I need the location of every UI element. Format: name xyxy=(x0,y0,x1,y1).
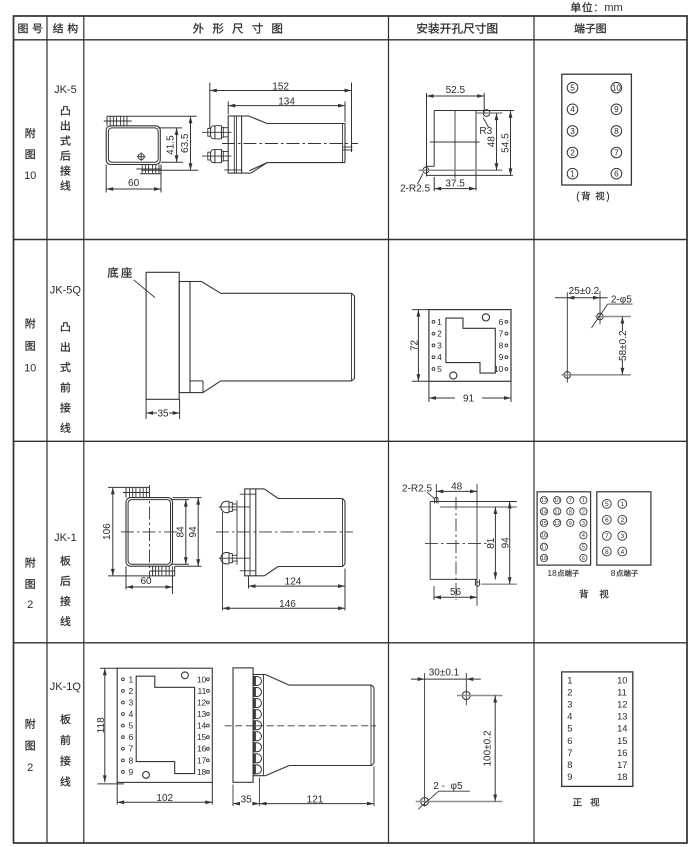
svg-text:17: 17 xyxy=(617,760,627,770)
svg-text:6: 6 xyxy=(567,736,572,746)
svg-text:7: 7 xyxy=(129,744,134,754)
svg-text:R3: R3 xyxy=(479,126,492,137)
svg-text:48: 48 xyxy=(451,482,463,493)
svg-text:13: 13 xyxy=(617,712,627,722)
svg-text:2: 2 xyxy=(567,688,572,698)
svg-text:5: 5 xyxy=(570,84,575,93)
svg-text:18: 18 xyxy=(541,556,547,562)
svg-text:48: 48 xyxy=(487,136,498,148)
svg-text:3: 3 xyxy=(582,521,585,527)
svg-text:100±0.2: 100±0.2 xyxy=(483,730,494,767)
svg-text:12: 12 xyxy=(617,700,627,710)
svg-text:4: 4 xyxy=(620,549,624,556)
svg-text:φ5: φ5 xyxy=(450,781,462,792)
svg-text:1: 1 xyxy=(582,498,585,504)
svg-text:10: 10 xyxy=(494,364,504,374)
svg-text:8: 8 xyxy=(611,568,616,578)
svg-text:11: 11 xyxy=(555,509,560,515)
svg-text:134: 134 xyxy=(278,96,295,107)
svg-text:JK-5: JK-5 xyxy=(54,84,77,96)
svg-text:16: 16 xyxy=(617,748,627,758)
svg-text:2: 2 xyxy=(582,509,585,515)
svg-text:18: 18 xyxy=(617,772,627,782)
svg-text:12: 12 xyxy=(197,697,207,707)
svg-text:9: 9 xyxy=(569,521,572,527)
svg-text:10: 10 xyxy=(617,676,627,686)
svg-text:2: 2 xyxy=(27,762,33,774)
svg-text:7: 7 xyxy=(614,148,619,157)
svg-text:84: 84 xyxy=(176,526,187,538)
svg-text:mm: mm xyxy=(604,2,622,14)
svg-text:6: 6 xyxy=(129,732,134,742)
svg-text:1: 1 xyxy=(567,676,572,686)
svg-text:15: 15 xyxy=(541,521,547,527)
svg-text:9: 9 xyxy=(129,767,134,777)
svg-text:2: 2 xyxy=(437,329,442,339)
svg-text:): ) xyxy=(606,191,610,203)
svg-text:4: 4 xyxy=(582,533,585,539)
svg-text:17: 17 xyxy=(197,755,207,765)
svg-text:52.5: 52.5 xyxy=(446,85,466,96)
svg-text:37.5: 37.5 xyxy=(445,179,465,190)
svg-text:2: 2 xyxy=(570,148,575,157)
svg-text:1: 1 xyxy=(620,501,624,508)
svg-text:JK-1: JK-1 xyxy=(54,532,77,544)
svg-text:6: 6 xyxy=(614,170,619,179)
svg-text:：: ： xyxy=(593,2,604,14)
svg-text:16: 16 xyxy=(541,533,547,539)
svg-text:3: 3 xyxy=(570,127,575,136)
svg-text:16: 16 xyxy=(197,744,207,754)
svg-text:121: 121 xyxy=(307,795,324,806)
svg-text:18: 18 xyxy=(197,767,207,777)
svg-text:102: 102 xyxy=(156,793,173,804)
svg-text:5: 5 xyxy=(567,724,572,734)
svg-text:9: 9 xyxy=(567,772,572,782)
svg-text:14: 14 xyxy=(541,509,547,515)
svg-text:5: 5 xyxy=(437,364,442,374)
svg-text:2-R2.5: 2-R2.5 xyxy=(400,184,430,195)
svg-text:10: 10 xyxy=(24,170,36,182)
svg-text:54.5: 54.5 xyxy=(501,133,512,153)
svg-text:1: 1 xyxy=(129,674,134,684)
svg-text:1: 1 xyxy=(437,317,442,327)
svg-text:8: 8 xyxy=(129,755,134,765)
svg-text:56: 56 xyxy=(450,587,462,598)
svg-text:10: 10 xyxy=(612,84,622,93)
svg-text:7: 7 xyxy=(499,329,504,339)
svg-text:7: 7 xyxy=(605,533,609,540)
svg-text:3: 3 xyxy=(437,340,442,350)
svg-text:14: 14 xyxy=(197,721,207,731)
svg-text:63.5: 63.5 xyxy=(180,133,191,153)
svg-text:7: 7 xyxy=(567,748,572,758)
svg-text:7: 7 xyxy=(569,498,572,504)
svg-text:41.5: 41.5 xyxy=(165,135,176,155)
svg-text:10: 10 xyxy=(554,498,560,504)
svg-text:6: 6 xyxy=(499,317,504,327)
svg-text:13: 13 xyxy=(197,709,207,719)
svg-text:72: 72 xyxy=(410,339,421,351)
svg-text:94: 94 xyxy=(500,537,511,549)
svg-text:10: 10 xyxy=(24,362,36,374)
svg-text:11: 11 xyxy=(197,686,206,696)
svg-text:1: 1 xyxy=(570,170,575,179)
svg-text:118: 118 xyxy=(96,717,107,733)
svg-text:8: 8 xyxy=(614,127,619,136)
svg-text:17: 17 xyxy=(541,545,547,551)
svg-text:12: 12 xyxy=(554,521,560,527)
svg-text:30±0.1: 30±0.1 xyxy=(429,667,460,678)
svg-text:60: 60 xyxy=(140,576,152,587)
svg-text:JK-5Q: JK-5Q xyxy=(50,284,82,296)
svg-text:58±0.2: 58±0.2 xyxy=(618,330,629,361)
svg-text:152: 152 xyxy=(272,81,289,92)
svg-text:4: 4 xyxy=(567,712,572,722)
svg-text:3: 3 xyxy=(567,700,572,710)
svg-text:15: 15 xyxy=(197,732,207,742)
svg-text:25±0.2: 25±0.2 xyxy=(569,286,600,297)
svg-text:4: 4 xyxy=(129,709,134,719)
svg-text:9: 9 xyxy=(499,352,504,362)
svg-text:8: 8 xyxy=(567,760,572,770)
svg-text:9: 9 xyxy=(614,105,619,114)
svg-text:35: 35 xyxy=(157,408,169,419)
svg-text:14: 14 xyxy=(617,724,627,734)
svg-text:2: 2 xyxy=(129,686,134,696)
svg-text:4: 4 xyxy=(437,352,442,362)
svg-text:8: 8 xyxy=(605,549,609,556)
svg-text:5: 5 xyxy=(605,501,609,508)
svg-text:2-φ5: 2-φ5 xyxy=(611,295,632,306)
svg-text:124: 124 xyxy=(285,577,302,588)
svg-text:94: 94 xyxy=(188,526,199,538)
svg-text:15: 15 xyxy=(617,736,627,746)
svg-text:5: 5 xyxy=(582,545,585,551)
svg-text:11: 11 xyxy=(617,688,627,698)
svg-text:35: 35 xyxy=(241,795,253,806)
svg-text:2: 2 xyxy=(27,599,33,611)
svg-text:91: 91 xyxy=(463,393,475,404)
svg-text:6: 6 xyxy=(605,517,609,524)
svg-text:2 -: 2 - xyxy=(433,781,445,792)
svg-text:JK-1Q: JK-1Q xyxy=(50,681,82,693)
svg-text:10: 10 xyxy=(197,674,207,684)
svg-text:3: 3 xyxy=(129,697,134,707)
svg-text:18: 18 xyxy=(547,568,557,578)
svg-text:60: 60 xyxy=(128,178,140,189)
svg-text:(: ( xyxy=(576,191,580,203)
svg-text:3: 3 xyxy=(620,533,624,540)
svg-text:146: 146 xyxy=(279,599,296,610)
svg-text:81: 81 xyxy=(486,537,497,549)
svg-text:5: 5 xyxy=(129,721,134,731)
svg-text:8: 8 xyxy=(499,340,504,350)
svg-text:13: 13 xyxy=(541,498,547,504)
svg-text:2-R2.5: 2-R2.5 xyxy=(402,484,432,495)
svg-text:4: 4 xyxy=(570,105,575,114)
svg-text:6: 6 xyxy=(582,556,585,562)
svg-text:8: 8 xyxy=(569,509,572,515)
svg-text:2: 2 xyxy=(620,517,624,524)
svg-text:106: 106 xyxy=(102,523,113,540)
